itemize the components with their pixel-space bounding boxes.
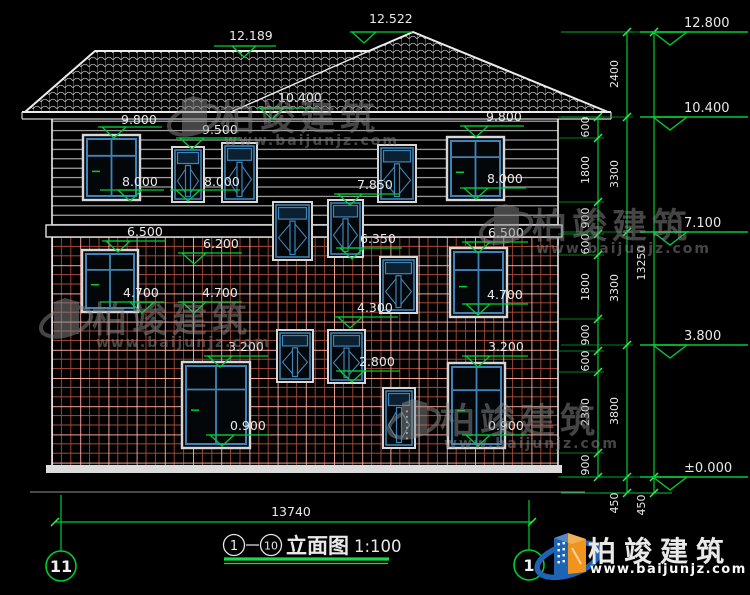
svg-text:8.000: 8.000 [204,174,240,189]
title-layer: 110立面图1:100 [224,534,402,564]
svg-text:10: 10 [264,540,278,553]
elevation-marker-right: 10.400 [640,101,748,130]
svg-text:4.700: 4.700 [123,285,159,300]
svg-text:9.800: 9.800 [121,112,157,127]
svg-text:4.700: 4.700 [202,285,238,300]
window [277,330,313,382]
drawing-canvas: 6001800900600180090060023009002400330033… [0,0,750,595]
svg-text:7.850: 7.850 [357,177,393,192]
svg-text:450: 450 [608,493,621,514]
svg-text:11: 11 [50,557,72,576]
svg-text:1800: 1800 [579,273,592,301]
company-url-text: www.baijunjz.com [590,562,747,577]
svg-text:3.800: 3.800 [684,329,721,344]
svg-text:www.baijunjz.com: www.baijunjz.com [444,436,619,452]
svg-text:6.350: 6.350 [360,231,396,246]
grid-axis-bubble: 11 [46,495,76,581]
svg-text:6.200: 6.200 [203,236,239,251]
svg-text:10.400: 10.400 [684,101,730,116]
svg-text:3800: 3800 [608,397,621,425]
svg-text:3.200: 3.200 [488,339,524,354]
svg-text:1: 1 [230,539,238,554]
svg-text:8.000: 8.000 [487,171,523,186]
svg-text:600: 600 [579,117,592,138]
elevation-marker-right: 3.800 [640,329,748,358]
svg-text:13740: 13740 [271,504,311,519]
svg-text:3300: 3300 [608,160,621,188]
svg-text:1800: 1800 [579,156,592,184]
svg-text:1: 1 [523,556,534,575]
window [273,202,312,260]
window [222,143,257,202]
svg-text:12.189: 12.189 [229,28,273,43]
svg-text:0.900: 0.900 [230,418,266,433]
cad-elevation-drawing: 6001800900600180090060023009002400330033… [0,0,750,595]
svg-text:4.300: 4.300 [357,300,393,315]
drawing-title: 110立面图1:100 [224,534,402,564]
svg-text:12.522: 12.522 [369,11,413,26]
svg-text:12.800: 12.800 [684,16,730,31]
svg-text:2.800: 2.800 [359,354,395,369]
svg-text:4.700: 4.700 [487,287,523,302]
svg-text:600: 600 [579,351,592,372]
svg-text:900: 900 [579,325,592,346]
svg-text:www.baijunjz.com: www.baijunjz.com [224,133,399,149]
svg-text:1:100: 1:100 [354,537,402,556]
svg-text:900: 900 [579,455,592,476]
svg-text:450: 450 [635,495,648,516]
svg-text:3300: 3300 [608,274,621,302]
svg-text:6.500: 6.500 [127,224,163,239]
svg-text:立面图: 立面图 [286,534,349,558]
window [447,137,504,200]
svg-text:8.000: 8.000 [122,174,158,189]
svg-text:www.baijunjz.com: www.baijunjz.com [96,335,271,351]
svg-text:±0.000: ±0.000 [684,461,732,476]
svg-text:9.800: 9.800 [486,109,522,124]
svg-text:2400: 2400 [608,60,621,88]
plinth [46,465,562,473]
bottom-dimension: 13740 [51,504,536,526]
window [450,248,507,317]
window [172,147,204,202]
svg-text:www.baijunjz.com: www.baijunjz.com [536,241,711,257]
